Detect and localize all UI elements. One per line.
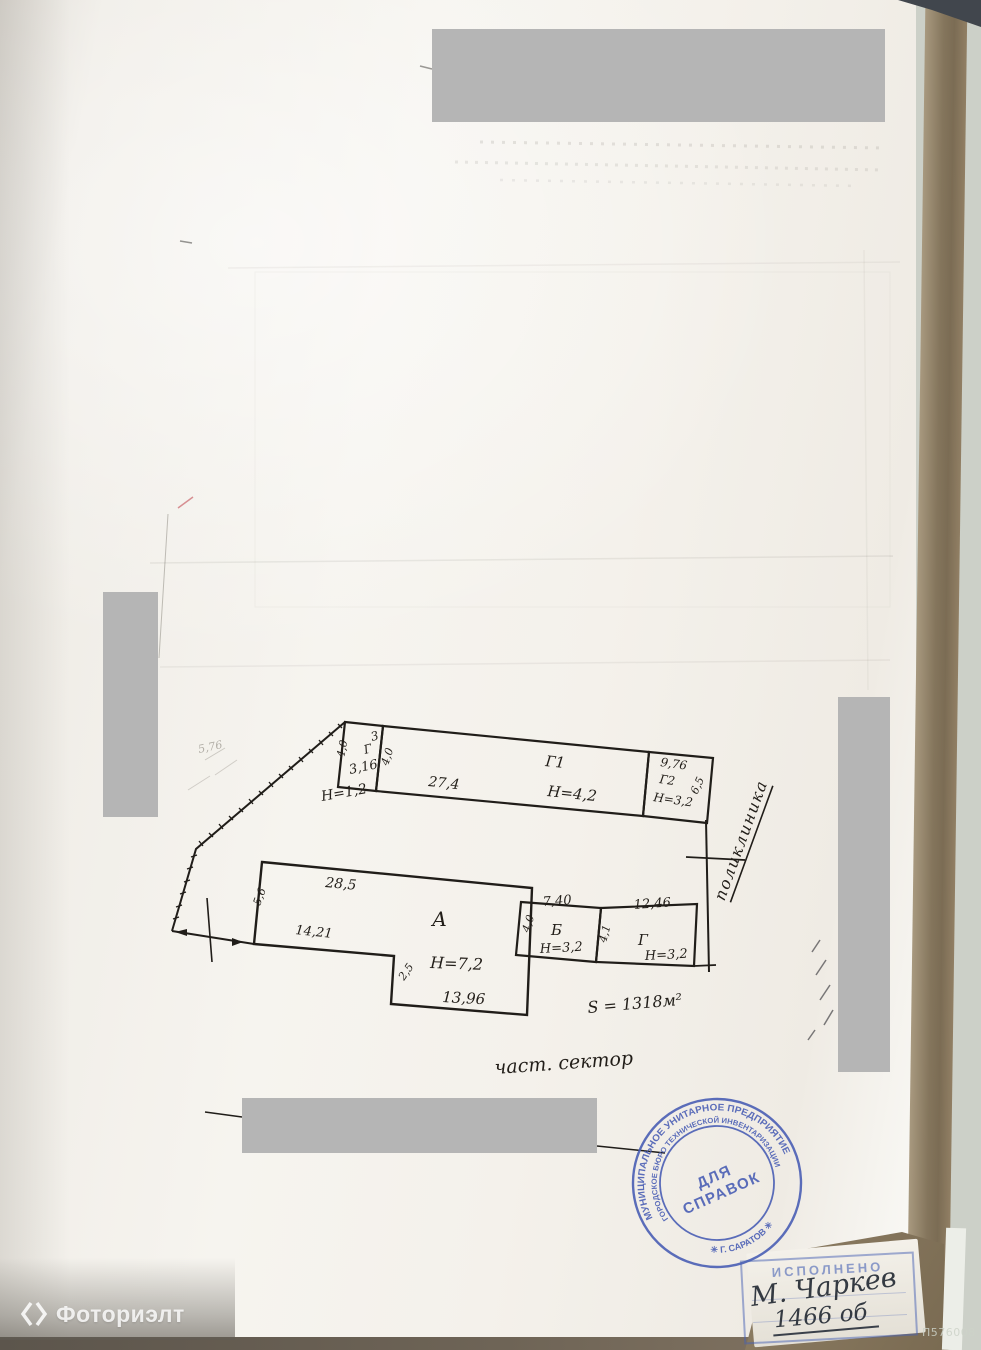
sector-note: част. сектор	[494, 1047, 634, 1079]
plan-labels: 3 Г 3,16 4,0 4,0 Н=1,2 27,4 Г1 Н=4,2 9,7…	[197, 728, 707, 1079]
watermark-brand-text: Фоториэлт	[56, 1301, 185, 1328]
b-label: Б	[550, 921, 562, 939]
g1-length: 27,4	[427, 774, 461, 793]
shed3-side-left: 4,0	[334, 739, 351, 760]
g1-label: Г1	[544, 752, 566, 772]
redacted-street-line-left	[205, 1112, 242, 1117]
g-label: Г	[637, 931, 649, 949]
g-top-dim: 12,46	[633, 895, 671, 913]
shed3-width: 3,16	[348, 757, 379, 778]
watermark-logo-icon	[20, 1300, 48, 1328]
baseline-measure	[172, 898, 254, 962]
redaction-left	[103, 592, 158, 817]
shed3-number: 3	[369, 728, 380, 744]
a-height: Н=7,2	[429, 953, 483, 974]
a-label: А	[430, 907, 447, 931]
g-height: Н=3,2	[643, 947, 688, 964]
a-offset-dim: 14,21	[295, 923, 334, 942]
b-side-dim: 4,0	[519, 913, 537, 935]
dim-arrow-left	[175, 929, 187, 936]
redaction-address-top	[432, 29, 885, 122]
a-left-dim: 5,6	[251, 886, 269, 907]
handwriting-fragments	[808, 940, 833, 1040]
g2-label: Г2	[658, 772, 676, 788]
photo-id-code: П576008	[922, 1326, 976, 1339]
building-g1-outline	[376, 726, 649, 816]
b-height: Н=3,2	[538, 940, 583, 957]
a-bottom-dim: 13,96	[442, 988, 486, 1008]
round-bti-stamp: МУНИЦИПАЛЬНОЕ УНИТАРНОЕ ПРЕДПРИЯТИЕ ГОРО…	[622, 1088, 812, 1278]
building-a-outline	[254, 862, 532, 1015]
redaction-street-bottom	[242, 1098, 597, 1153]
a-top-dim: 28,5	[324, 875, 358, 894]
shed3-height: Н=1,2	[319, 781, 368, 805]
watermark: Фоториэлт	[20, 1300, 185, 1328]
g2-side: 6,5	[688, 775, 707, 796]
area-note: S = 1318м²	[587, 990, 683, 1017]
redaction-right	[838, 697, 890, 1072]
street-name: поликлиника	[710, 777, 773, 903]
scanned-bti-plan-page: 3 Г 3,16 4,0 4,0 Н=1,2 27,4 Г1 Н=4,2 9,7…	[0, 0, 981, 1350]
red-pencil-mark	[178, 497, 193, 508]
dim-arrow-right	[232, 938, 243, 946]
pencil-ruling	[150, 66, 900, 790]
g1-height: Н=4,2	[546, 782, 598, 805]
pencil-note: 5,76	[197, 738, 224, 756]
a-step-dim: 2,5	[395, 961, 416, 984]
g2-width: 9,76	[660, 755, 689, 773]
svg-text:поликлиника: поликлиника	[710, 777, 771, 903]
b-top-dim: 7,40	[542, 893, 572, 910]
g2-height: Н=3,2	[652, 790, 694, 810]
